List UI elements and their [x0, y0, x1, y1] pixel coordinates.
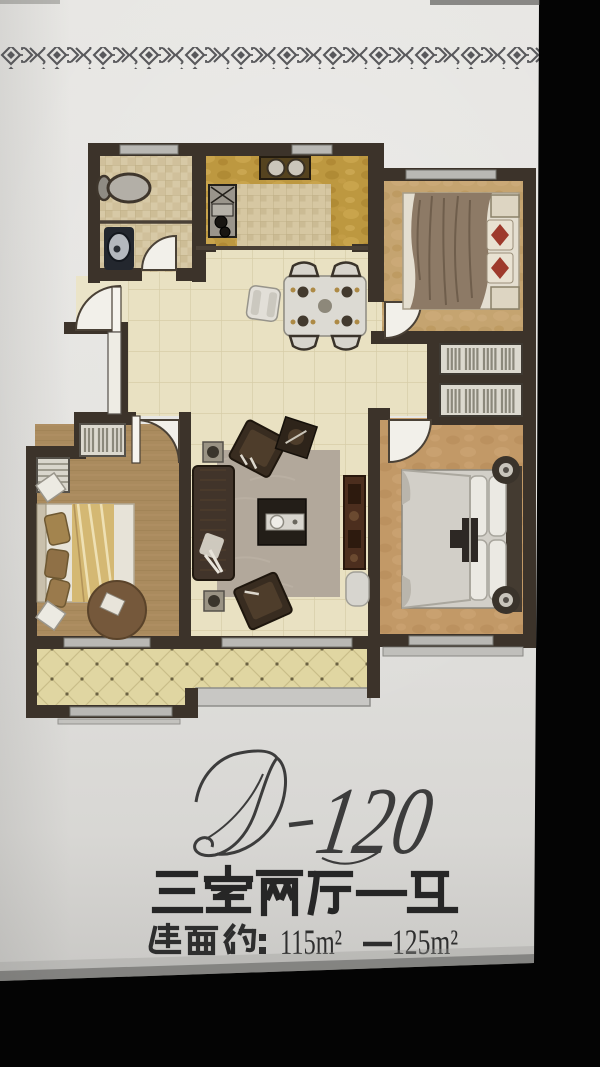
svg-text:120: 120: [309, 768, 440, 874]
